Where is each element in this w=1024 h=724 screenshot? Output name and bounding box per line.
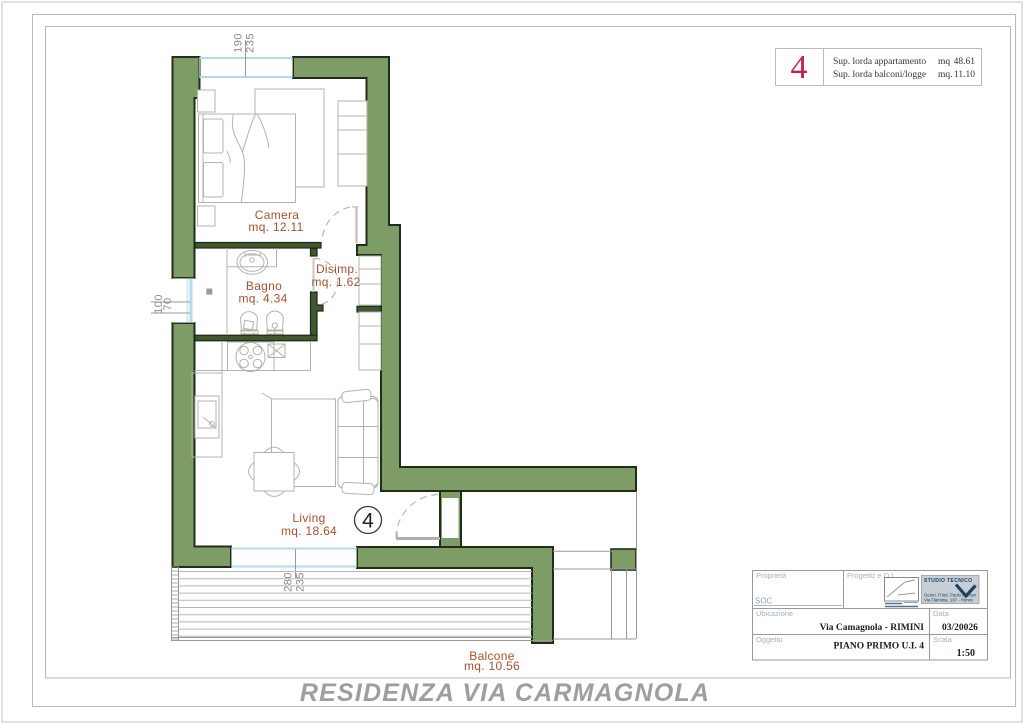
svg-text:mq. 10.56: mq. 10.56 [464, 659, 520, 673]
svg-text:48.61: 48.61 [954, 57, 976, 67]
svg-text:Scala: Scala [933, 635, 953, 644]
svg-text:PIANO PRIMO U.I. 4: PIANO PRIMO U.I. 4 [833, 642, 924, 652]
svg-text:Living: Living [292, 511, 325, 525]
svg-text:03/20026: 03/20026 [942, 623, 978, 633]
svg-text:1:50: 1:50 [957, 648, 975, 659]
svg-text:mq. 4.34: mq. 4.34 [238, 292, 287, 306]
svg-text:mq.: mq. [938, 70, 953, 80]
svg-text:Via Camagnola - RIMINI: Via Camagnola - RIMINI [820, 623, 925, 633]
svg-text:mq: mq [938, 57, 950, 67]
svg-text:Oggetto: Oggetto [756, 635, 783, 644]
svg-text:280: 280 [283, 572, 295, 592]
svg-text:4: 4 [362, 510, 374, 533]
svg-text:RESIDENZA VIA CARMAGNOLA: RESIDENZA VIA CARMAGNOLA [300, 679, 710, 707]
svg-text:11.10: 11.10 [954, 70, 975, 80]
svg-text:mq. 12.11: mq. 12.11 [248, 220, 303, 234]
svg-text:Ubicazione: Ubicazione [756, 609, 793, 618]
svg-text:235: 235 [295, 572, 307, 592]
svg-text:Via Flaminia, 187 - Rimini: Via Flaminia, 187 - Rimini [924, 598, 973, 603]
svg-text:Sup. lorda balconi/logge: Sup. lorda balconi/logge [833, 70, 926, 80]
svg-text:235: 235 [245, 33, 257, 53]
svg-text:mq. 1.62: mq. 1.62 [311, 275, 360, 289]
svg-text:Proprietà: Proprietà [756, 571, 787, 580]
svg-text:Sup. lorda appartamento: Sup. lorda appartamento [833, 57, 926, 67]
svg-text:70: 70 [162, 297, 174, 310]
svg-text:SOC: SOC [755, 597, 773, 606]
svg-text:STUDIO TECNICO: STUDIO TECNICO [924, 578, 972, 584]
svg-text:mq. 18.64: mq. 18.64 [281, 524, 337, 538]
svg-text:Data: Data [933, 609, 950, 618]
svg-text:Disimp.: Disimp. [316, 262, 358, 276]
svg-text:4: 4 [791, 49, 808, 86]
svg-text:190: 190 [233, 33, 245, 53]
